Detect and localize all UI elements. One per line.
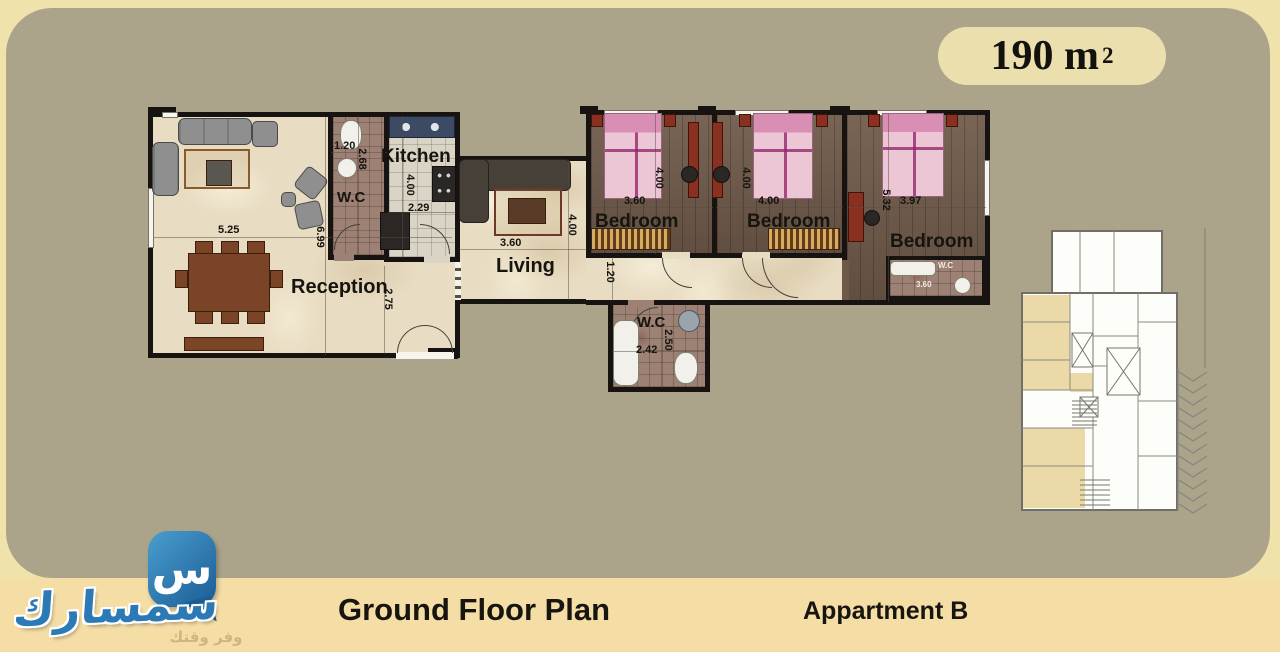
wc-door-gap: [334, 254, 354, 261]
desk: [848, 192, 864, 242]
key-plan: [1018, 226, 1208, 516]
dim-bedroom1-height: 4.00: [653, 161, 665, 195]
bedroom3-door-gap: [842, 260, 849, 300]
wall-pier: [830, 106, 850, 114]
stool: [713, 166, 730, 183]
stove: [432, 166, 456, 202]
wc-bedroom3-label: W.C: [938, 261, 953, 270]
sideboard: [184, 337, 264, 351]
window: [148, 188, 154, 248]
refrigerator: [380, 212, 410, 250]
three-seat-sofa: [178, 118, 252, 145]
dimension-line: [612, 351, 706, 352]
reception-living-opening: [455, 262, 461, 300]
nightstand: [739, 114, 751, 127]
armchair: [252, 121, 278, 147]
dining-chair: [247, 241, 265, 254]
reception-label: Reception: [291, 276, 388, 299]
two-seat-sofa: [152, 142, 179, 196]
dim-kitchen-width: 2.29: [408, 202, 429, 214]
nightstand: [946, 114, 958, 127]
dim-bedroom3-width: 3.97: [900, 195, 921, 207]
dimension-line: [358, 116, 359, 254]
dim-living-height: 4.00: [566, 208, 578, 242]
dimension-line: [154, 237, 452, 238]
kitchen-sink: [389, 116, 455, 138]
toilet: [674, 352, 698, 384]
nightstand: [664, 114, 676, 127]
nightstand: [868, 114, 880, 127]
l-sofa-corner: [459, 159, 489, 223]
dim-reception-height: 6.99: [314, 220, 326, 254]
dining-chair: [175, 270, 188, 288]
area-exponent: 2: [1102, 43, 1114, 69]
bed: [753, 113, 813, 199]
dining-chair: [195, 311, 213, 324]
wall-pier: [698, 106, 716, 114]
dim-reception-width: 5.25: [218, 224, 239, 236]
bedroom2-label: Bedroom: [747, 211, 830, 233]
wall-pier: [580, 106, 598, 114]
dim-wc-top-width: 1.20: [334, 140, 355, 152]
logo-tagline: وفر وقتك: [148, 628, 264, 646]
wardrobe: [688, 122, 699, 198]
highlighted-apartment: [1023, 295, 1070, 390]
entrance-door-gap: [396, 352, 454, 359]
dim-living-width: 3.60: [500, 237, 521, 249]
kitchen-door-gap: [424, 256, 450, 263]
bedroom1-label: Bedroom: [595, 211, 678, 233]
corridor: [586, 253, 846, 305]
dim-corridor-width: 1.20: [604, 255, 616, 289]
living-corridor-opening: [586, 258, 592, 300]
ramp-chevrons: [1178, 228, 1207, 513]
dim-reception-side: 2.75: [382, 282, 394, 316]
nightstand: [816, 114, 828, 127]
dim-kitchen-height: 4.00: [404, 168, 416, 202]
dining-chair: [270, 270, 283, 288]
desk-chair: [864, 210, 880, 226]
tv-table: [508, 198, 546, 224]
dimension-line: [716, 207, 843, 208]
area-value: 190 m: [991, 32, 1100, 80]
dim-wc-bottom-width: 2.42: [636, 344, 657, 356]
nightstand: [591, 114, 603, 127]
dim-bedroom2-width: 4.00: [758, 195, 779, 207]
dim-wc-bottom-height: 2.50: [662, 323, 674, 357]
washbasin: [954, 277, 971, 294]
floor-plan-poster: 190 m2: [0, 0, 1280, 652]
window: [162, 112, 178, 118]
dining-chair: [195, 241, 213, 254]
kitchen-label: Kitchen: [381, 146, 451, 168]
dimension-line: [402, 116, 403, 258]
wardrobe: [712, 122, 723, 198]
dim-bedroom1-width: 3.60: [624, 195, 645, 207]
dimension-line: [591, 207, 713, 208]
bedroom3-label: Bedroom: [890, 231, 973, 253]
dim-wc-top-height: 2.68: [356, 142, 368, 176]
dim-wc-bedroom3-width: 3.60: [916, 280, 932, 289]
dim-bedroom3-height: 5.32: [880, 183, 892, 217]
wc-top-label: W.C: [337, 189, 365, 206]
washbasin: [678, 310, 700, 332]
dining-chair: [221, 311, 239, 324]
washbasin: [337, 158, 357, 178]
living-label: Living: [496, 255, 555, 278]
dining-table: [188, 253, 270, 312]
coffee-table: [206, 160, 232, 186]
dim-bedroom2-height: 4.00: [740, 161, 752, 195]
apartment-label: Appartment B: [803, 597, 968, 626]
wc-bottom-door-gap: [628, 300, 654, 307]
stairs: [1072, 401, 1097, 425]
plan-title: Ground Floor Plan: [338, 592, 610, 628]
stool: [681, 166, 698, 183]
dining-chair: [247, 311, 265, 324]
dimension-line: [847, 207, 986, 208]
area-badge: 190 m2: [938, 27, 1166, 85]
side-table: [281, 192, 296, 207]
dining-chair: [221, 241, 239, 254]
bathtub: [890, 261, 936, 276]
